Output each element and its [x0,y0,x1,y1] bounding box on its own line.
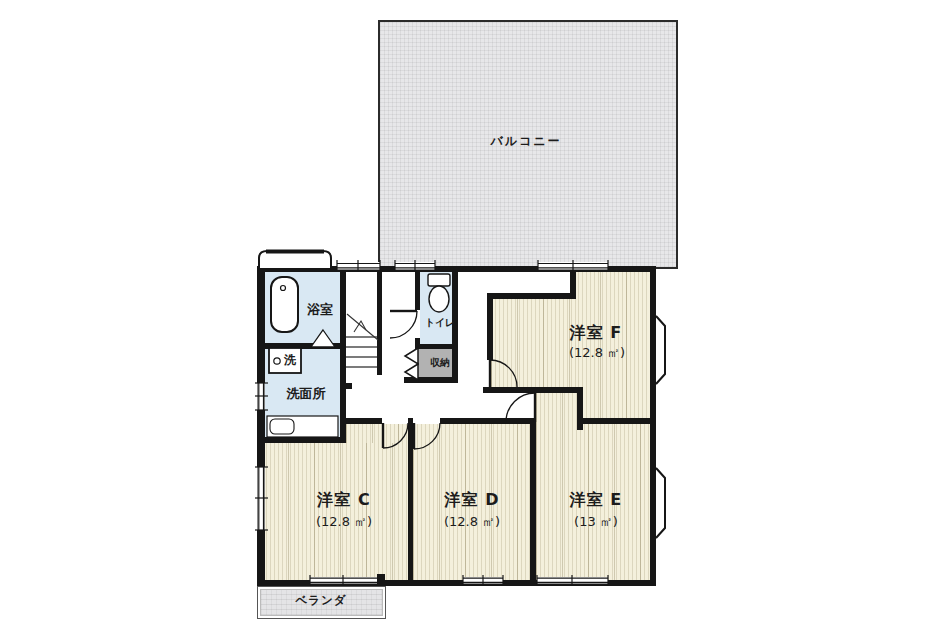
toilet-icon [428,274,450,312]
wall-toilet-storage-divider [415,344,452,349]
balcony-label: バルコニー [490,135,561,147]
wall-hall-b [440,418,536,424]
plan-linework [0,0,950,634]
wall-washroom-bottom [257,437,346,443]
wall-stairs-right [377,272,382,375]
room-e-bay-window-icon [656,468,665,538]
room-e-name: 洋室 E [570,492,623,508]
wall-wet-right [340,272,346,443]
toilet-door-arc [390,311,417,338]
room-c-name: 洋室 C [317,492,370,508]
window-room-c-left [255,467,268,530]
wall-de-divider [530,418,536,586]
storage-label: 収納 [430,358,450,368]
floor-plan: バルコニー 浴室 洗 洗面所 トイレ 収納 洋室 F (12.8 ㎡) 洋室 C… [0,0,950,634]
storage-bifold-door-icon [405,348,418,380]
bathroom-label: 浴室 [307,303,333,316]
room-c-door-arc [383,423,408,448]
room-c-area: (12.8 ㎡) [316,515,372,528]
washer-label: 洗 [284,354,296,366]
washroom-label: 洗面所 [287,387,326,400]
window-toilet-top [395,260,435,271]
wall-toilet-left-upper [415,272,420,310]
bathtub-icon [271,277,298,332]
room-e-area: (13 ㎡) [574,515,618,528]
room-d-name: 洋室 D [445,492,500,508]
wall-right [650,266,656,586]
room-e-door-arc [506,393,535,422]
wall-f-bottom [483,387,583,393]
window-stairs-top [337,260,380,271]
wall-storage-bottom [404,377,458,383]
wall-cd-divider [408,418,413,586]
wall-e-entry-right [577,393,583,430]
stairs [346,314,378,367]
wall-left [257,266,265,586]
room-f-bay-window-icon [656,316,665,384]
stairs-direction-line [347,314,378,340]
veranda-label: ベランダ [295,595,346,607]
stairs-direction-arrow [354,321,366,332]
room-d-area: (12.8 ㎡) [444,515,500,528]
room-d-door-arc [414,423,440,449]
room-f-door-arc [490,360,517,387]
room-f-name: 洋室 F [570,325,623,341]
wall-f-top [487,293,576,299]
room-f-area: (12.8 ㎡) [569,346,625,359]
window-room-f-top [538,260,608,271]
wall-f-left [487,299,493,360]
bath-bay-window-icon [259,251,331,268]
toilet-label: トイレ [425,318,456,328]
wall-fe-divider [577,418,650,424]
wall-pillar [377,574,385,582]
bath-door-icon [311,330,335,347]
window-washroom-left [255,383,268,410]
wall-hall-stub [343,383,352,389]
sink-icon [267,416,338,437]
wall-hall-a [340,418,382,424]
